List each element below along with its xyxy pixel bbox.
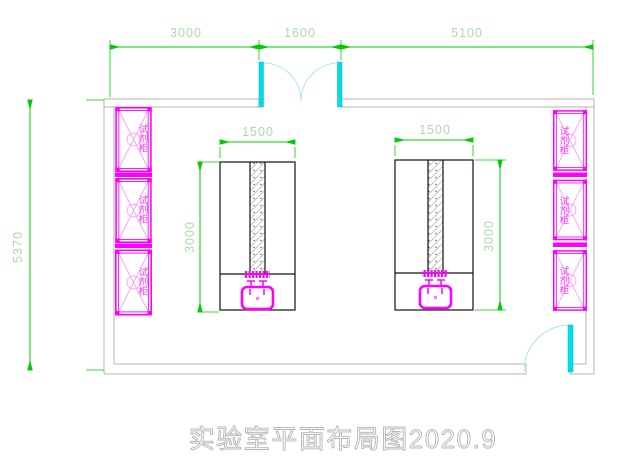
dimension-bench-left-width: 1500	[220, 125, 295, 158]
door-leaf-right	[338, 62, 343, 107]
sink-center-mark	[434, 296, 437, 299]
cabinet-label: 试剂柜	[558, 265, 570, 295]
floor-plan-drawing: 3000 1600 5100 5370 试剂柜 试剂柜 试剂柜	[0, 0, 619, 469]
sink-right	[420, 270, 451, 308]
cabinet-connector-bar	[115, 244, 152, 249]
wall-bottom	[104, 364, 594, 374]
sink-basin-ticks	[428, 288, 442, 294]
dim-extension	[200, 162, 219, 312]
lab-bench-left	[220, 162, 295, 310]
dimension-left: 5370	[11, 100, 104, 370]
cabinet-connector-bar	[553, 243, 587, 248]
dim-text-bench-left-depth: 3000	[183, 221, 197, 253]
bench-center-shelf-hatch	[428, 160, 443, 273]
bench-center-shelf-hatch	[250, 162, 265, 274]
dimension-bench-right-depth: 3000	[475, 160, 506, 310]
dim-text-top-middle: 1600	[284, 26, 316, 40]
cabinet-label: 试剂柜	[558, 125, 570, 155]
door-swing-arc-left	[263, 63, 301, 101]
dim-text-bench-right-depth: 3000	[482, 220, 496, 252]
door-top-double	[259, 62, 342, 107]
dimension-top: 3000 1600 5100	[110, 26, 593, 97]
dimension-bench-right-width: 1500	[395, 123, 473, 156]
cabinet-strip-left: 试剂柜 试剂柜 试剂柜	[115, 107, 152, 316]
sink-drain-grille	[422, 270, 448, 277]
sink-basin-ticks	[250, 289, 264, 295]
wall-top	[104, 99, 594, 107]
door-swing-arc	[524, 325, 570, 371]
dimension-bench-left-depth: 3000	[183, 162, 219, 312]
room-walls	[104, 99, 594, 374]
drawing-title: 实验室平面布局图2020.9	[189, 424, 498, 454]
dim-extension-lines-top	[110, 40, 593, 97]
cabinet-connector-bar	[553, 173, 587, 178]
cabinet-strip-right: 试剂柜 试剂柜 试剂柜	[553, 110, 587, 311]
cabinet-label: 试剂柜	[137, 123, 149, 153]
door-swing-arc-right	[301, 63, 339, 101]
cabinet-label: 试剂柜	[137, 194, 149, 224]
sink-drain-grille	[244, 271, 270, 278]
cabinet-label: 试剂柜	[137, 266, 149, 296]
floor-plan-canvas: 3000 1600 5100 5370 试剂柜 试剂柜 试剂柜	[0, 0, 619, 469]
door-leaf	[568, 325, 573, 372]
sink-left	[242, 271, 273, 309]
door-leaf-left	[259, 62, 264, 107]
door-bottom-right	[524, 325, 573, 372]
lab-bench-right	[395, 160, 473, 310]
dim-extension	[220, 147, 295, 158]
dim-extension-lines-left	[86, 100, 104, 370]
dim-text-room-height: 5370	[11, 231, 25, 263]
wall-left	[104, 99, 114, 374]
dim-text-bench-right-width: 1500	[419, 123, 451, 137]
dim-text-bench-left-width: 1500	[242, 125, 274, 139]
wall-right	[586, 99, 594, 374]
sink-center-mark	[256, 297, 259, 300]
dim-extension	[395, 145, 473, 156]
dim-text-top-right: 5100	[451, 26, 483, 40]
cabinet-label: 试剂柜	[558, 195, 570, 225]
dim-text-top-left: 3000	[170, 26, 202, 40]
cabinet-connector-bar	[115, 173, 152, 178]
